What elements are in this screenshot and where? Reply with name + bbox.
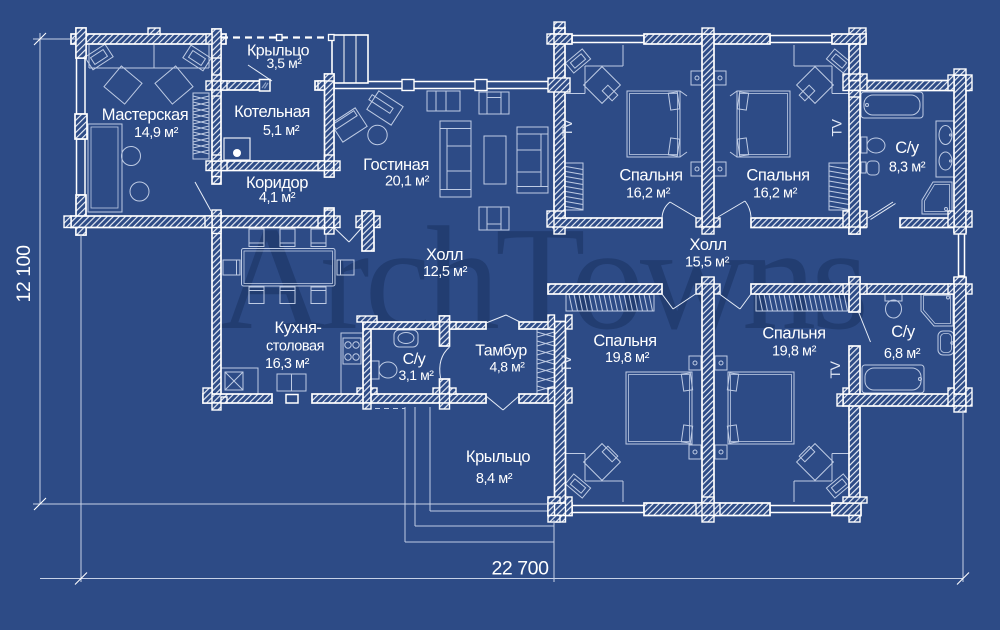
svg-text:Спальня: Спальня <box>762 325 825 343</box>
svg-text:12,5 м²: 12,5 м² <box>423 264 468 280</box>
svg-text:Спальня: Спальня <box>593 332 656 350</box>
svg-text:Гостиная: Гостиная <box>363 156 429 174</box>
svg-text:8,4 м²: 8,4 м² <box>476 471 513 487</box>
svg-text:3,5 м²: 3,5 м² <box>267 55 303 71</box>
svg-text:16,2 м²: 16,2 м² <box>753 186 798 202</box>
svg-text:Крыльцо: Крыльцо <box>466 448 530 466</box>
svg-text:столовая: столовая <box>266 339 324 355</box>
svg-text:12 100: 12 100 <box>13 245 35 303</box>
svg-text:Мастерская: Мастерская <box>102 106 189 124</box>
svg-text:TV: TV <box>559 118 575 136</box>
svg-text:С/у: С/у <box>891 323 916 341</box>
svg-text:5,1 м²: 5,1 м² <box>263 123 300 139</box>
svg-text:Холл: Холл <box>689 236 726 254</box>
svg-text:TV: TV <box>827 360 843 378</box>
svg-text:Спальня: Спальня <box>619 167 682 185</box>
svg-text:TV: TV <box>829 118 845 136</box>
svg-text:С/у: С/у <box>403 351 426 368</box>
svg-text:Спальня: Спальня <box>746 167 809 185</box>
svg-text:3,1 м²: 3,1 м² <box>399 367 435 383</box>
svg-text:С/у: С/у <box>895 139 920 157</box>
svg-text:19,8 м²: 19,8 м² <box>605 350 650 366</box>
svg-text:22 700: 22 700 <box>492 558 550 580</box>
svg-text:Тамбур: Тамбур <box>475 343 527 360</box>
svg-text:в: в <box>290 397 294 404</box>
svg-text:Холл: Холл <box>426 246 463 264</box>
svg-text:6,8 м²: 6,8 м² <box>884 346 921 362</box>
svg-text:4,8 м²: 4,8 м² <box>490 359 526 375</box>
svg-text:16,3 м²: 16,3 м² <box>265 356 310 372</box>
svg-text:TV: TV <box>558 354 574 372</box>
svg-text:16,2 м²: 16,2 м² <box>626 186 671 202</box>
svg-text:8,3 м²: 8,3 м² <box>889 160 926 176</box>
svg-text:14,9 м²: 14,9 м² <box>134 125 179 141</box>
svg-text:20,1 м²: 20,1 м² <box>385 174 430 190</box>
svg-text:Кухня-: Кухня- <box>275 319 322 337</box>
svg-text:19,8 м²: 19,8 м² <box>772 344 817 360</box>
svg-text:4,1 м²: 4,1 м² <box>259 190 296 206</box>
svg-text:15,5 м²: 15,5 м² <box>685 255 730 271</box>
svg-text:Котельная: Котельная <box>234 103 310 121</box>
